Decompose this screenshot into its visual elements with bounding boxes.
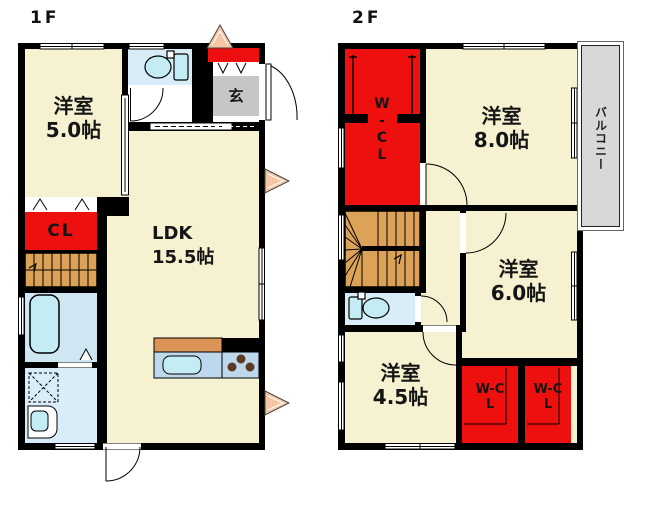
- room-label-genkan: 玄: [213, 80, 259, 110]
- room-label-balcony: バルコニー: [582, 88, 620, 188]
- wall: [122, 122, 259, 131]
- wall: [338, 325, 466, 332]
- closet-door-strip: [25, 197, 97, 212]
- room-label-wcl-left: W-CL: [473, 375, 507, 420]
- stairs-2f: [345, 211, 420, 287]
- shoe-cabinet: [208, 48, 259, 62]
- wall: [456, 358, 577, 366]
- hallway-1f: [128, 85, 192, 122]
- floor1-title: 1F: [30, 8, 59, 28]
- room-label-ldk: LDK 15.5帖: [152, 222, 214, 271]
- room-label-yoshitsu45: 洋室 4.5帖: [345, 352, 456, 417]
- room-label-cl: CL: [25, 212, 97, 250]
- room-label-yoshitsu8: 洋室 8.0帖: [426, 95, 577, 160]
- wall: [222, 338, 259, 352]
- genkan-step: [213, 116, 259, 122]
- floor2-title: 2F: [352, 8, 381, 28]
- opening-arrow-icon: [265, 391, 289, 415]
- wall: [97, 287, 107, 443]
- room-toilet-2f: [345, 293, 415, 325]
- opening-arrow-icon: [265, 169, 289, 193]
- room-size: 4.5帖: [373, 385, 428, 409]
- room-size: 5.0帖: [46, 118, 101, 142]
- room-bathroom: [25, 293, 97, 362]
- room-name: 洋室: [381, 361, 421, 385]
- wall: [415, 293, 421, 325]
- stairs-1f: [25, 253, 97, 287]
- room-size: 15.5帖: [152, 246, 214, 270]
- room-name: 洋室: [482, 104, 522, 128]
- floorplan-canvas: 1F 洋室 5.0帖 CL LDK 15.5帖 玄 2F W-CL 洋室 8.0…: [0, 0, 645, 508]
- room-size: 6.0帖: [491, 281, 546, 305]
- wall: [420, 211, 426, 293]
- wall: [97, 197, 107, 293]
- wall: [107, 197, 129, 216]
- wall: [518, 366, 525, 443]
- room-name: 洋室: [54, 94, 94, 118]
- room-washroom: [25, 368, 97, 443]
- room-label-wcl-right: W-CL: [531, 375, 565, 420]
- room-name: LDK: [152, 222, 214, 246]
- shoe-cabinet-doors: [213, 62, 259, 76]
- room-name: 洋室: [499, 257, 539, 281]
- room-label-yoshitsu6: 洋室 6.0帖: [466, 248, 571, 313]
- room-toilet-1f: [128, 49, 192, 85]
- room-label-wicl: W-CL: [352, 75, 412, 185]
- room-size: 8.0帖: [474, 128, 529, 152]
- room-label-yoshitsu5: 洋室 5.0帖: [25, 85, 122, 150]
